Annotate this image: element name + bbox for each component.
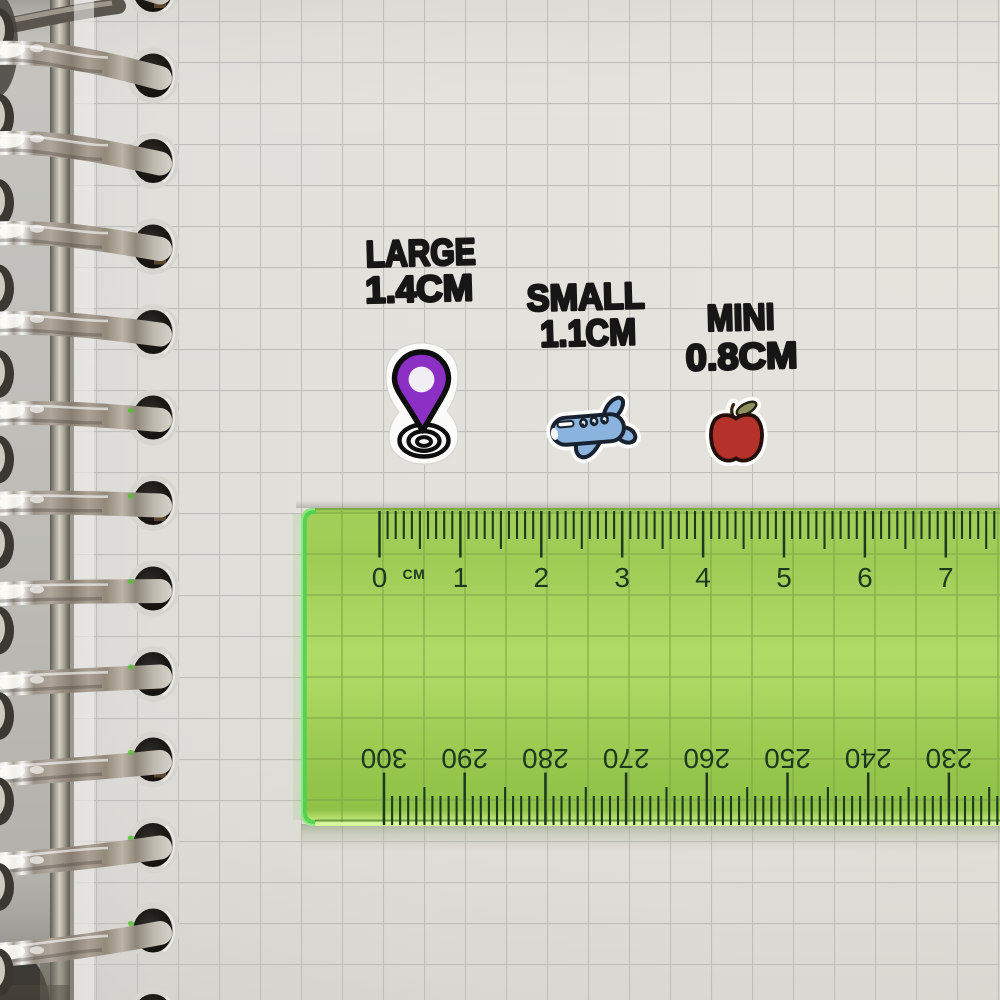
svg-text:300: 300 (361, 743, 408, 774)
svg-text:0.8CM: 0.8CM (685, 335, 798, 379)
svg-text:MINI: MINI (706, 296, 775, 339)
svg-text:0: 0 (372, 562, 388, 593)
svg-text:280: 280 (522, 743, 569, 774)
svg-text:230: 230 (926, 743, 973, 774)
svg-text:270: 270 (603, 743, 650, 774)
svg-text:1.1CM: 1.1CM (540, 311, 637, 354)
svg-text:5: 5 (776, 562, 792, 593)
svg-text:290: 290 (441, 743, 488, 774)
svg-text:7: 7 (938, 562, 954, 593)
svg-text:6: 6 (857, 562, 873, 593)
svg-text:4: 4 (695, 562, 711, 593)
svg-text:1: 1 (453, 562, 469, 593)
svg-text:260: 260 (683, 743, 730, 774)
svg-text:2: 2 (534, 562, 550, 593)
svg-text:240: 240 (845, 743, 892, 774)
svg-text:3: 3 (614, 562, 630, 593)
svg-text:1.4CM: 1.4CM (365, 267, 474, 311)
svg-text:CM: CM (403, 566, 426, 582)
svg-text:250: 250 (764, 743, 811, 774)
